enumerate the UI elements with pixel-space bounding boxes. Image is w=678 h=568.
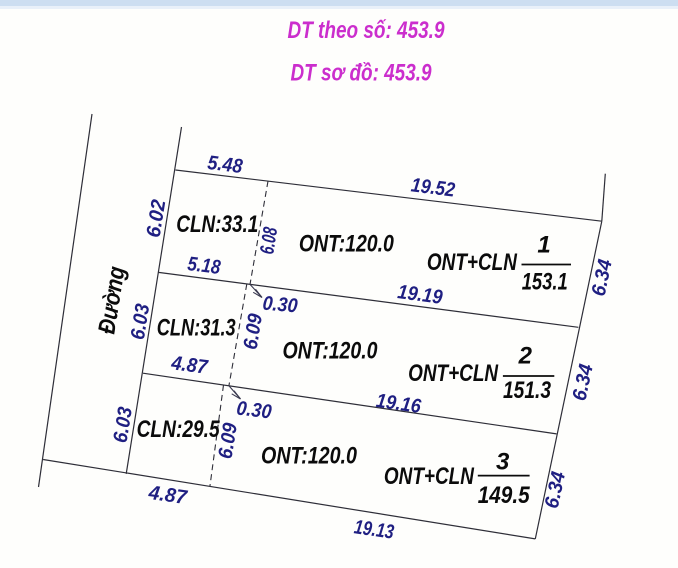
svg-text:CLN:29.5: CLN:29.5 (137, 416, 221, 443)
svg-text:CLN:31.3: CLN:31.3 (157, 315, 236, 342)
svg-text:149.5: 149.5 (478, 482, 531, 509)
svg-text:6.08: 6.08 (256, 225, 282, 256)
svg-text:ONT+CLN: ONT+CLN (427, 249, 518, 276)
svg-text:151.3: 151.3 (503, 377, 552, 404)
svg-text:1: 1 (537, 232, 550, 259)
svg-text:2: 2 (518, 343, 533, 370)
svg-text:5.48: 5.48 (206, 152, 244, 178)
svg-text:5.18: 5.18 (186, 253, 222, 279)
svg-text:0.30: 0.30 (235, 397, 272, 423)
svg-text:ONT:120.0: ONT:120.0 (261, 442, 358, 469)
svg-text:CLN:33.1: CLN:33.1 (176, 211, 258, 238)
svg-text:153.1: 153.1 (522, 269, 568, 296)
svg-text:ONT+CLN: ONT+CLN (408, 360, 499, 387)
svg-text:0.30: 0.30 (262, 293, 299, 318)
svg-text:ONT+CLN: ONT+CLN (384, 463, 475, 490)
svg-text:3: 3 (496, 449, 510, 476)
svg-text:DT theo số: 453.9: DT theo số: 453.9 (288, 17, 446, 44)
svg-text:DT sơ đồ: 453.9: DT sơ đồ: 453.9 (291, 60, 433, 87)
svg-text:ONT:120.0: ONT:120.0 (299, 230, 395, 257)
svg-text:ONT:120.0: ONT:120.0 (283, 338, 379, 365)
